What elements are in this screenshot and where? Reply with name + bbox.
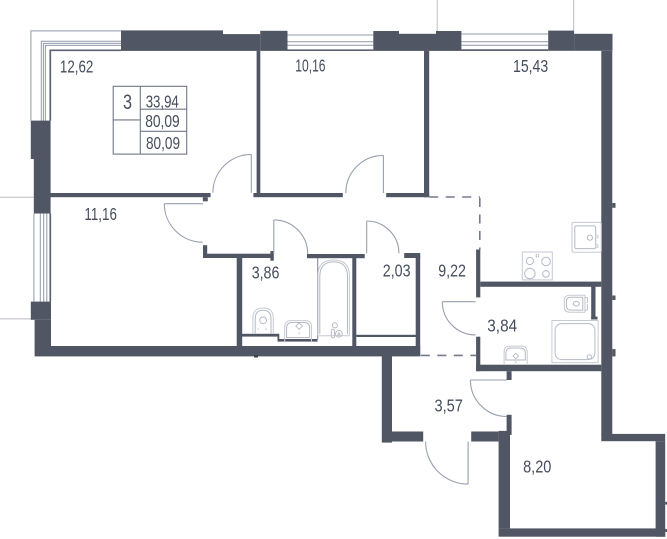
svg-text:15,43: 15,43 [513,56,548,76]
svg-text:3,86: 3,86 [252,262,280,282]
svg-text:9,22: 9,22 [438,260,466,280]
svg-text:3: 3 [123,91,132,114]
svg-text:80,09: 80,09 [145,111,180,131]
svg-text:3,57: 3,57 [435,395,463,415]
svg-text:11,16: 11,16 [84,204,117,224]
svg-text:80,09: 80,09 [146,133,180,153]
svg-text:3,84: 3,84 [487,315,517,335]
svg-text:2,03: 2,03 [383,260,411,280]
svg-text:12,62: 12,62 [60,56,93,76]
svg-text:10,16: 10,16 [295,56,325,76]
svg-text:33,94: 33,94 [146,92,179,112]
svg-text:8,20: 8,20 [523,456,551,476]
